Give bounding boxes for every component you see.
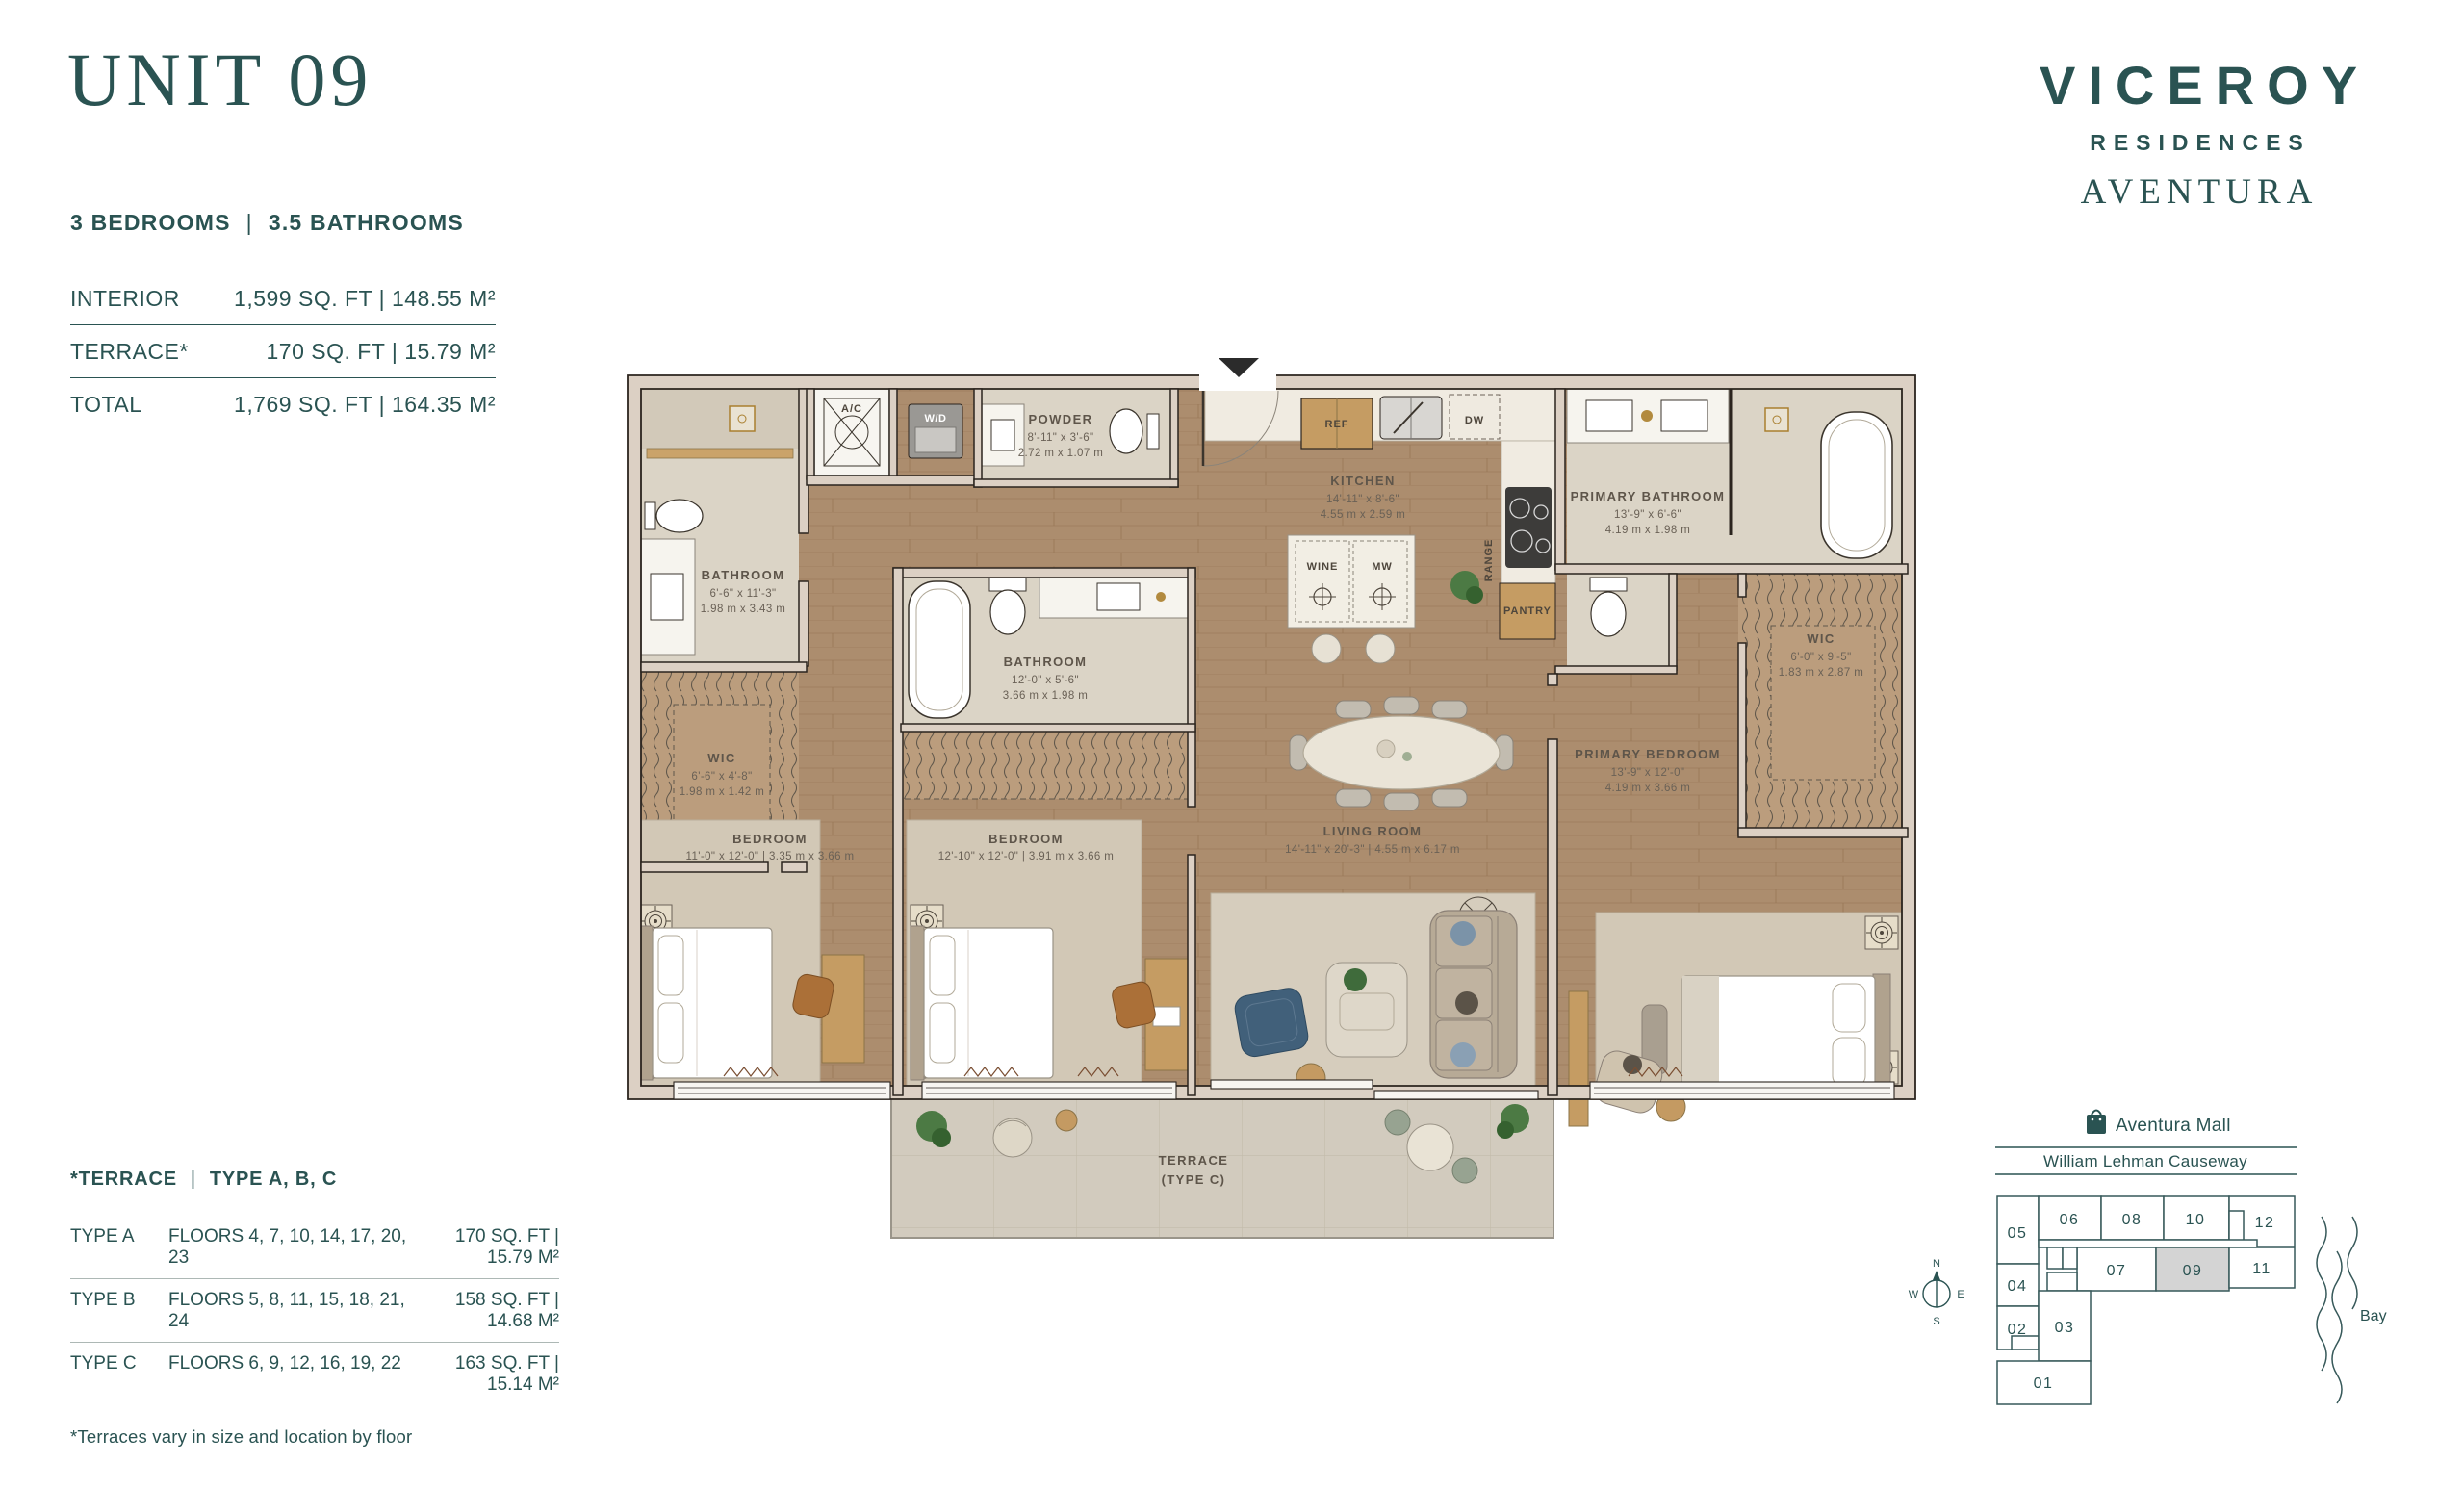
lounge-chair-icon: [993, 1118, 1032, 1157]
dining-chair-icon: [1432, 789, 1467, 807]
ac-label: A/C: [841, 403, 862, 415]
room-label: PRIMARY BATHROOM: [1571, 489, 1726, 503]
room-label: TERRACE: [1159, 1153, 1229, 1168]
core: [2047, 1247, 2063, 1269]
table-row: TERRACE* 170 SQ. FT | 15.79 M²: [70, 325, 496, 378]
table-row: TOTAL 1,769 SQ. FT | 164.35 M²: [70, 378, 496, 430]
dining-chair-icon: [1384, 793, 1419, 810]
sofa-icon: [1430, 911, 1517, 1078]
mall-label: Aventura Mall: [2116, 1116, 2231, 1136]
compass-e: E: [1957, 1289, 1963, 1300]
table-row: TYPE C FLOORS 6, 9, 12, 16, 19, 22 163 S…: [70, 1343, 559, 1405]
unit-number: 06: [2060, 1212, 2080, 1228]
dining-chair-icon: [1336, 701, 1371, 718]
core: [2047, 1272, 2077, 1291]
building-footprint: [1997, 1196, 2295, 1404]
table-row: TYPE A FLOORS 4, 7, 10, 14, 17, 20, 23 1…: [70, 1216, 559, 1279]
room-label: WIC: [707, 751, 735, 765]
room-dims-ft: 6'-6" x 11'-3": [709, 588, 776, 600]
bedrooms-count: 3 BEDROOMS: [70, 210, 231, 235]
area-value: 158 SQ. FT | 14.68 M²: [419, 1290, 559, 1332]
terrace-title-types: TYPE A, B, C: [210, 1169, 337, 1190]
ref-label: REF: [1325, 419, 1349, 430]
room-label: POWDER: [1029, 412, 1093, 426]
unit-number-highlighted: 09: [2183, 1263, 2203, 1279]
core: [2063, 1247, 2077, 1269]
causeway-label: William Lehman Causeway: [2043, 1152, 2247, 1170]
pillow-icon: [1833, 984, 1865, 1032]
unit-02-notch: [2012, 1336, 2039, 1350]
room-dims-m: 1.83 m x 2.87 m: [1779, 667, 1863, 679]
bay-label: Bay: [2360, 1308, 2387, 1324]
room-dims-m: 4.55 m x 2.59 m: [1321, 509, 1405, 521]
range-label: RANGE: [1483, 539, 1495, 582]
floors-value: FLOORS 6, 9, 12, 16, 19, 22: [168, 1353, 419, 1375]
table-row: TYPE B FLOORS 5, 8, 11, 15, 18, 21, 24 1…: [70, 1279, 559, 1343]
room-dims-m: 3.66 m x 1.98 m: [1003, 690, 1088, 702]
room-dims: 14'-11" x 20'-3" | 4.55 m x 6.17 m: [1285, 844, 1460, 856]
shower-ledge: [647, 449, 793, 458]
room-dims: 12'-10" x 12'-0" | 3.91 m x 3.66 m: [938, 851, 1115, 862]
dining-chair-icon: [1336, 789, 1371, 807]
shower-head-icon: [730, 406, 755, 431]
pillow-icon: [930, 936, 955, 995]
terrace-chair-icon: [1452, 1158, 1477, 1183]
dining-table-icon: [1303, 716, 1500, 789]
laundry-closet: W/D: [909, 404, 962, 458]
unit-number: 12: [2255, 1215, 2275, 1231]
unit-number: 04: [2008, 1278, 2028, 1295]
area-table: INTERIOR 1,599 SQ. FT | 148.55 M² TERRAC…: [70, 272, 496, 430]
room-label: BATHROOM: [702, 568, 785, 582]
page-title: UNIT 09: [67, 37, 372, 123]
area-value: 1,769 SQ. FT | 164.35 M²: [234, 392, 496, 418]
room-dims-ft: 8'-11" x 3'-6": [1027, 432, 1093, 444]
room-label: KITCHEN: [1330, 474, 1396, 488]
room-label: BATHROOM: [1004, 655, 1088, 669]
compass-n: N: [1933, 1258, 1940, 1270]
unit-number: 03: [2055, 1320, 2075, 1336]
primary-toilet-room: [1567, 574, 1669, 666]
compass-w: W: [1909, 1289, 1919, 1300]
room-dims-ft: 13'-9" x 6'-6": [1614, 509, 1681, 521]
unit-specs: 3 BEDROOMS|3.5 BATHROOMS: [70, 210, 464, 236]
ac-closet: A/C: [814, 389, 889, 476]
terrace-table-icon: [1407, 1124, 1453, 1170]
floorplan: TERRACE (TYPE C) BATHROOM 6'-6" x 11'-3"…: [621, 354, 1920, 1240]
unit-number: 02: [2008, 1322, 2028, 1338]
area-value: 1,599 SQ. FT | 148.55 M²: [234, 286, 496, 312]
toilet-icon: [1590, 578, 1627, 591]
pillow-icon: [1833, 1038, 1865, 1086]
area-value: 170 SQ. FT | 15.79 M²: [419, 1226, 559, 1269]
room-dims-m: 4.19 m x 1.98 m: [1605, 525, 1690, 536]
toilet-icon: [1147, 414, 1159, 449]
pillow-icon: [1450, 1042, 1476, 1067]
brand-logo: VICEROY RESIDENCES AVENTURA: [2027, 54, 2366, 213]
terrace-chair-icon: [1385, 1110, 1410, 1135]
console-icon: [1569, 991, 1588, 1126]
unit-number: 05: [2008, 1225, 2028, 1242]
unit-number: 01: [2034, 1375, 2054, 1392]
bathroom-1: BATHROOM 6'-6" x 11'-3" 1.98 m x 3.43 m: [641, 389, 799, 662]
pillow-icon: [1455, 991, 1478, 1015]
brand-residences: RESIDENCES: [2027, 130, 2366, 156]
speaker-icon: [1865, 916, 1898, 949]
compass-s: S: [1933, 1316, 1939, 1327]
wine-label: WINE: [1307, 561, 1339, 573]
toilet-icon: [989, 578, 1026, 591]
room-dims-m: 4.19 m x 3.66 m: [1605, 783, 1690, 794]
coffee-table-icon: [1326, 963, 1407, 1057]
pillow-icon: [1450, 921, 1476, 946]
headboard: [1873, 974, 1890, 1093]
stool-icon: [1366, 634, 1395, 663]
dw-label: DW: [1465, 415, 1484, 426]
room-label: BEDROOM: [988, 832, 1064, 846]
room-type-label: (TYPE C): [1162, 1172, 1226, 1187]
room-dims-ft: 6'-6" x 4'-8": [691, 771, 752, 783]
room-dims-ft: 6'-0" x 9'-5": [1790, 652, 1851, 663]
area-value: 163 SQ. FT | 15.14 M²: [419, 1353, 559, 1396]
room-dims-ft: 12'-0" x 5'-6": [1012, 675, 1079, 686]
room-dims-ft: 14'-11" x 8'-6": [1326, 494, 1399, 505]
room-dims-m: 1.98 m x 1.42 m: [680, 786, 764, 798]
bathroom-2: BATHROOM 12'-0" x 5'-6" 3.66 m x 1.98 m: [901, 576, 1190, 724]
unit-number: 08: [2122, 1212, 2143, 1228]
area-label: INTERIOR: [70, 286, 180, 312]
dining-chair-icon: [1432, 701, 1467, 718]
terrace-area: TERRACE (TYPE C): [891, 1095, 1553, 1238]
specs-divider: |: [246, 210, 253, 235]
room-dims-m: 1.98 m x 3.43 m: [701, 604, 785, 615]
terrace-title-label: *TERRACE: [70, 1169, 177, 1190]
laptop-icon: [1153, 1007, 1180, 1026]
room-label: WIC: [1807, 631, 1835, 646]
shower-head-icon: [1765, 408, 1788, 431]
headboard: [911, 926, 924, 1080]
throw-blanket: [1682, 976, 1719, 1092]
pantry-label: PANTRY: [1503, 605, 1552, 617]
bedroom2-closet: [901, 732, 1190, 799]
room-label: BEDROOM: [732, 832, 808, 846]
area-label: TOTAL: [70, 392, 142, 418]
unit-number: 10: [2186, 1212, 2206, 1228]
unit-number: 07: [2107, 1263, 2127, 1279]
pillow-icon: [930, 1003, 955, 1063]
wic-2: WIC 6'-0" x 9'-5" 1.83 m x 2.87 m: [1738, 574, 1908, 835]
mw-label: MW: [1372, 561, 1393, 573]
compass-icon: N S W E: [1909, 1258, 1964, 1327]
area-label: TERRACE*: [70, 339, 189, 365]
powder-room: POWDER 8'-11" x 3'-6" 2.72 m x 1.07 m: [978, 389, 1174, 481]
table-row: INTERIOR 1,599 SQ. FT | 148.55 M²: [70, 272, 496, 325]
corridor: [2039, 1240, 2257, 1247]
armchair-icon: [1233, 987, 1310, 1059]
terrace-table-title: *TERRACE|TYPE A, B, C: [70, 1169, 559, 1191]
shopping-bag-icon: [2087, 1111, 2106, 1135]
type-label: TYPE B: [70, 1290, 168, 1311]
cooktop-icon: [1505, 487, 1552, 568]
side-table-icon: [1056, 1110, 1077, 1131]
type-label: TYPE A: [70, 1226, 168, 1247]
room-label: PRIMARY BEDROOM: [1575, 747, 1721, 761]
desk-chair-icon: [1111, 980, 1157, 1029]
room-dims-m: 2.72 m x 1.07 m: [1018, 448, 1103, 459]
stool-icon: [1312, 634, 1341, 663]
terrace-type-table: *TERRACE|TYPE A, B, C TYPE A FLOORS 4, 7…: [70, 1169, 559, 1448]
room-label: LIVING ROOM: [1323, 824, 1423, 838]
brand-name: VICEROY: [2027, 54, 2366, 116]
floors-value: FLOORS 4, 7, 10, 14, 17, 20, 23: [168, 1226, 419, 1269]
area-value: 170 SQ. FT | 15.79 M²: [267, 339, 496, 365]
pillow-icon: [658, 936, 683, 995]
toilet-icon: [645, 502, 655, 529]
plant-icon: [1344, 968, 1367, 991]
terrace-title-divider: |: [191, 1169, 196, 1190]
unit-number: 11: [2252, 1261, 2271, 1277]
primary-bathroom: PRIMARY BATHROOM 13'-9" x 6'-6" 4.19 m x…: [1567, 389, 1908, 564]
brand-location: AVENTURA: [2027, 171, 2366, 213]
room-dims: 11'-0" x 12'-0" | 3.35 m x 3.66 m: [686, 851, 855, 862]
floors-value: FLOORS 5, 8, 11, 15, 18, 21, 24: [168, 1290, 419, 1332]
type-label: TYPE C: [70, 1353, 168, 1375]
dining-chair-icon: [1384, 697, 1419, 714]
keyplan: Aventura Mall William Lehman Causeway 05…: [1891, 1097, 2392, 1425]
room-dims-ft: 13'-9" x 12'-0": [1611, 767, 1685, 779]
wd-label: W/D: [925, 413, 947, 424]
pillow-icon: [658, 1003, 683, 1063]
kitchen-island: [1288, 535, 1415, 628]
bathrooms-count: 3.5 BATHROOMS: [269, 210, 464, 235]
terrace-footnote: *Terraces vary in size and location by f…: [70, 1427, 559, 1448]
bay-waves-icon: [2317, 1217, 2357, 1403]
